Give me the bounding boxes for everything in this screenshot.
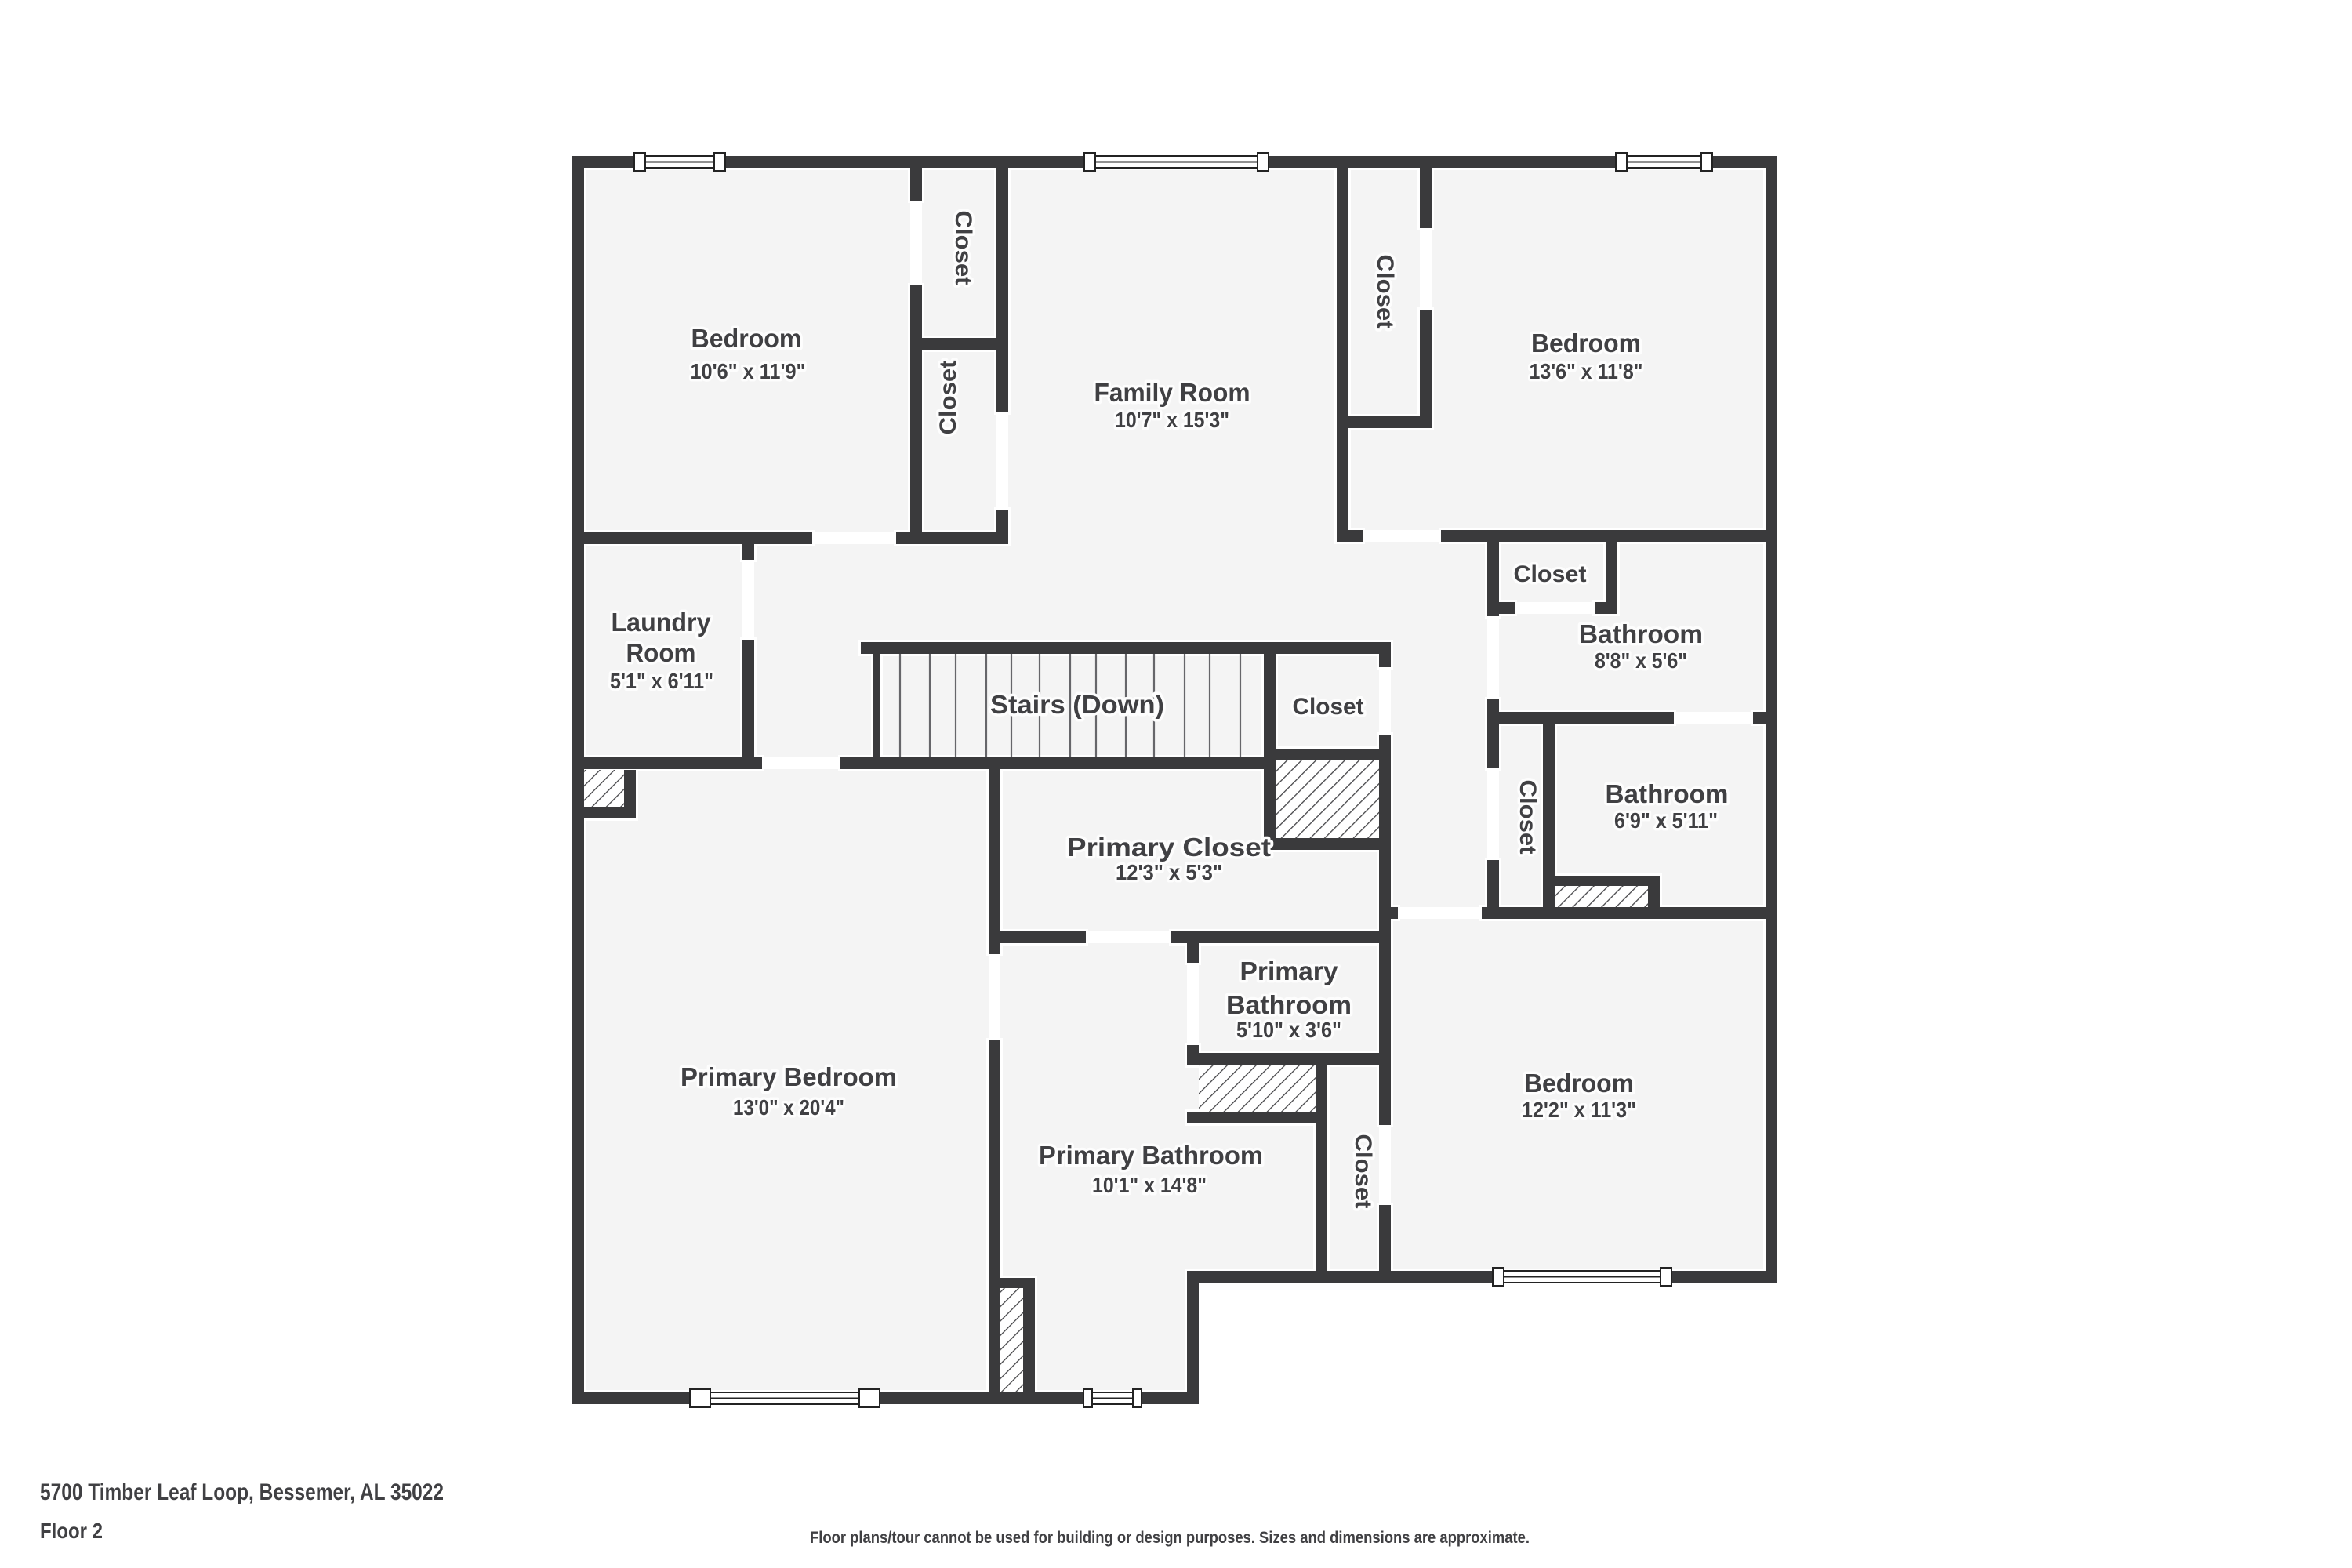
svg-text:Closet: Closet (1515, 780, 1541, 855)
svg-text:Floor 2: Floor 2 (40, 1519, 103, 1543)
svg-text:Bathroom: Bathroom (1606, 779, 1729, 808)
svg-text:Room: Room (626, 638, 696, 667)
svg-text:Bedroom: Bedroom (1531, 328, 1641, 358)
svg-text:Bedroom: Bedroom (691, 324, 802, 353)
svg-text:Closet: Closet (1372, 255, 1398, 329)
svg-text:Bathroom: Bathroom (1579, 619, 1703, 648)
svg-text:12'2" x 11'3": 12'2" x 11'3" (1522, 1098, 1636, 1122)
svg-text:Closet: Closet (935, 360, 961, 434)
svg-text:Bedroom: Bedroom (1524, 1069, 1634, 1098)
svg-text:5'1" x 6'11": 5'1" x 6'11" (610, 669, 713, 693)
svg-text:Closet: Closet (1514, 561, 1587, 587)
svg-text:Primary Bathroom: Primary Bathroom (1039, 1141, 1263, 1170)
svg-text:10'6" x 11'9": 10'6" x 11'9" (691, 359, 806, 383)
svg-text:Closet: Closet (1350, 1134, 1376, 1209)
svg-text:5700 Timber Leaf Loop, Besseme: 5700 Timber Leaf Loop, Bessemer, AL 3502… (40, 1479, 444, 1505)
svg-text:Bathroom: Bathroom (1226, 990, 1352, 1019)
svg-text:10'7" x 15'3": 10'7" x 15'3" (1115, 408, 1229, 432)
svg-text:Stairs (Down): Stairs (Down) (990, 690, 1164, 719)
svg-text:Primary Bedroom: Primary Bedroom (681, 1062, 897, 1091)
svg-text:6'9" x 5'11": 6'9" x 5'11" (1614, 808, 1718, 833)
svg-text:5'10" x 3'6": 5'10" x 3'6" (1236, 1018, 1341, 1042)
svg-text:Family Room: Family Room (1094, 378, 1250, 407)
svg-text:8'8" x 5'6": 8'8" x 5'6" (1595, 648, 1687, 673)
svg-text:Laundry: Laundry (612, 608, 712, 637)
svg-text:Primary: Primary (1240, 956, 1339, 985)
svg-text:12'3" x 5'3": 12'3" x 5'3" (1116, 860, 1222, 884)
svg-text:13'0" x 20'4": 13'0" x 20'4" (733, 1095, 844, 1120)
svg-text:13'6" x 11'8": 13'6" x 11'8" (1530, 359, 1643, 383)
svg-text:Closet: Closet (1293, 694, 1364, 720)
svg-text:10'1" x 14'8": 10'1" x 14'8" (1092, 1173, 1207, 1197)
svg-text:Closet: Closet (950, 211, 976, 285)
svg-text:Floor plans/tour cannot be use: Floor plans/tour cannot be used for buil… (810, 1529, 1530, 1547)
svg-text:Primary Closet: Primary Closet (1067, 833, 1271, 862)
